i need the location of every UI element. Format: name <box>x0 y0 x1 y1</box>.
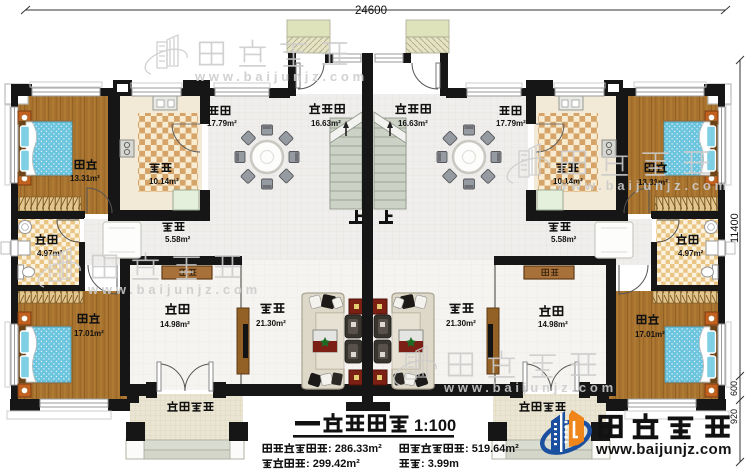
svg-text:: 286.33m²: : 286.33m² <box>328 443 382 455</box>
svg-text:5.58m²: 5.58m² <box>165 235 191 244</box>
svg-text:14.98m²: 14.98m² <box>160 320 190 329</box>
svg-text:13.31m²: 13.31m² <box>70 174 100 183</box>
svg-text:11400: 11400 <box>729 213 741 243</box>
svg-text:10.14m²: 10.14m² <box>149 177 179 186</box>
svg-text:: 3.99m: : 3.99m <box>421 458 459 470</box>
svg-text:24600: 24600 <box>355 5 387 17</box>
svg-text:17.79m²: 17.79m² <box>496 119 526 128</box>
svg-text:: 519.64m²: : 519.64m² <box>465 443 519 455</box>
svg-text:17.79m²: 17.79m² <box>207 119 237 128</box>
svg-text:920: 920 <box>729 409 739 424</box>
svg-text:5.58m²: 5.58m² <box>551 235 577 244</box>
svg-text:21.30m²: 21.30m² <box>446 319 476 328</box>
svg-text:17.01m²: 17.01m² <box>74 329 104 338</box>
svg-text:4.97m²: 4.97m² <box>678 249 704 258</box>
svg-text:www.baijunjz.com: www.baijunjz.com <box>595 441 732 458</box>
svg-text:14.98m²: 14.98m² <box>538 320 568 329</box>
svg-text:16.63m²: 16.63m² <box>398 119 428 128</box>
svg-text:21.30m²: 21.30m² <box>256 319 286 328</box>
svg-text:1:100: 1:100 <box>414 417 456 435</box>
svg-text:17.01m²: 17.01m² <box>635 330 665 339</box>
svg-text:: 299.42m²: : 299.42m² <box>306 458 360 470</box>
svg-text:600: 600 <box>729 381 739 396</box>
svg-text:16.63m²: 16.63m² <box>311 119 341 128</box>
